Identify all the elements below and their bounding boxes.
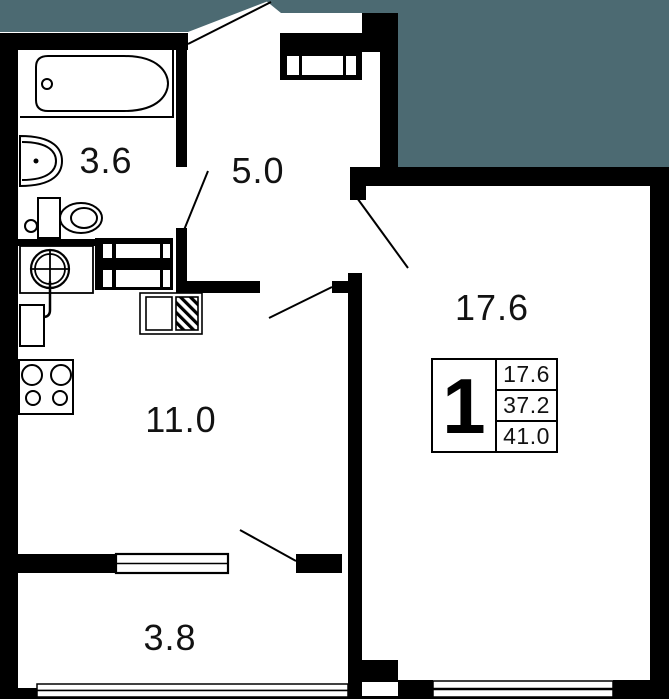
- wall-hall-right: [380, 52, 398, 167]
- living-area-value: 17.6: [497, 360, 556, 389]
- wall-bathroom-bottom: [0, 239, 95, 246]
- bathtub-drain: [42, 79, 52, 89]
- room-label-kitchen: 11.0: [145, 399, 216, 441]
- wall-balcony-left: [18, 554, 116, 573]
- door-lines: [184, 171, 408, 561]
- living-room-door: [352, 191, 408, 268]
- kitchen-fixtures: [19, 282, 73, 414]
- wall-bathroom-top: [0, 33, 188, 50]
- apartment-area-value: 37.2: [497, 389, 556, 420]
- toilet-bowl-inner: [71, 208, 97, 228]
- floor-plan-drawing: [0, 0, 669, 699]
- wall-room-bottom-step: [362, 660, 398, 682]
- kitchen-sink: [20, 305, 44, 346]
- kitchen-door: [269, 287, 332, 318]
- wall-bathroom-right-upper: [176, 50, 187, 167]
- bathroom-door: [184, 171, 208, 230]
- room-label-living-room: 17.6: [455, 287, 529, 329]
- floor-plan: 3.6 5.0 17.6 11.0 3.8 1 17.6 37.2 41.0: [0, 0, 669, 699]
- wall-bathroom-right-stub: [176, 228, 187, 293]
- vent-duct-block: [95, 238, 173, 290]
- balcony-railing: [37, 691, 348, 698]
- toilet-tank: [38, 198, 60, 238]
- bathtub: [36, 56, 168, 111]
- room-label-bathroom: 3.6: [79, 140, 132, 182]
- sink-drain: [34, 159, 39, 164]
- wall-room-top: [350, 167, 669, 186]
- toilet-flush-button: [25, 220, 37, 232]
- burner: [22, 365, 42, 385]
- balcony-railing: [37, 684, 348, 691]
- burner: [26, 391, 40, 405]
- room-label-hallway: 5.0: [231, 150, 284, 192]
- apartment-info-box: 1 17.6 37.2 41.0: [431, 358, 558, 453]
- wall-entry-top: [280, 33, 362, 50]
- balcony-door: [240, 530, 296, 561]
- burner: [53, 391, 67, 405]
- burner: [51, 365, 71, 385]
- wall-hall-kitchen: [186, 281, 260, 293]
- rooms-count: 1: [433, 360, 497, 451]
- windows: [37, 554, 613, 697]
- wall-entry-block: [362, 13, 398, 52]
- wall-left: [0, 33, 18, 699]
- vent-shaft-hatched: [140, 293, 202, 334]
- entry-shaft: [280, 50, 362, 80]
- wall-right: [650, 186, 669, 680]
- wall-balcony-right: [296, 554, 342, 573]
- total-area-value: 41.0: [497, 420, 556, 451]
- room-window: [433, 690, 613, 698]
- room-label-balcony: 3.8: [143, 617, 196, 659]
- washing-machine-area: [20, 246, 93, 293]
- room-window: [433, 681, 613, 689]
- wall-kitchen-room: [348, 273, 362, 699]
- hatch-cell: [176, 297, 198, 330]
- area-table: 17.6 37.2 41.0: [497, 360, 556, 451]
- wall-kitchen-door-stub: [332, 281, 350, 293]
